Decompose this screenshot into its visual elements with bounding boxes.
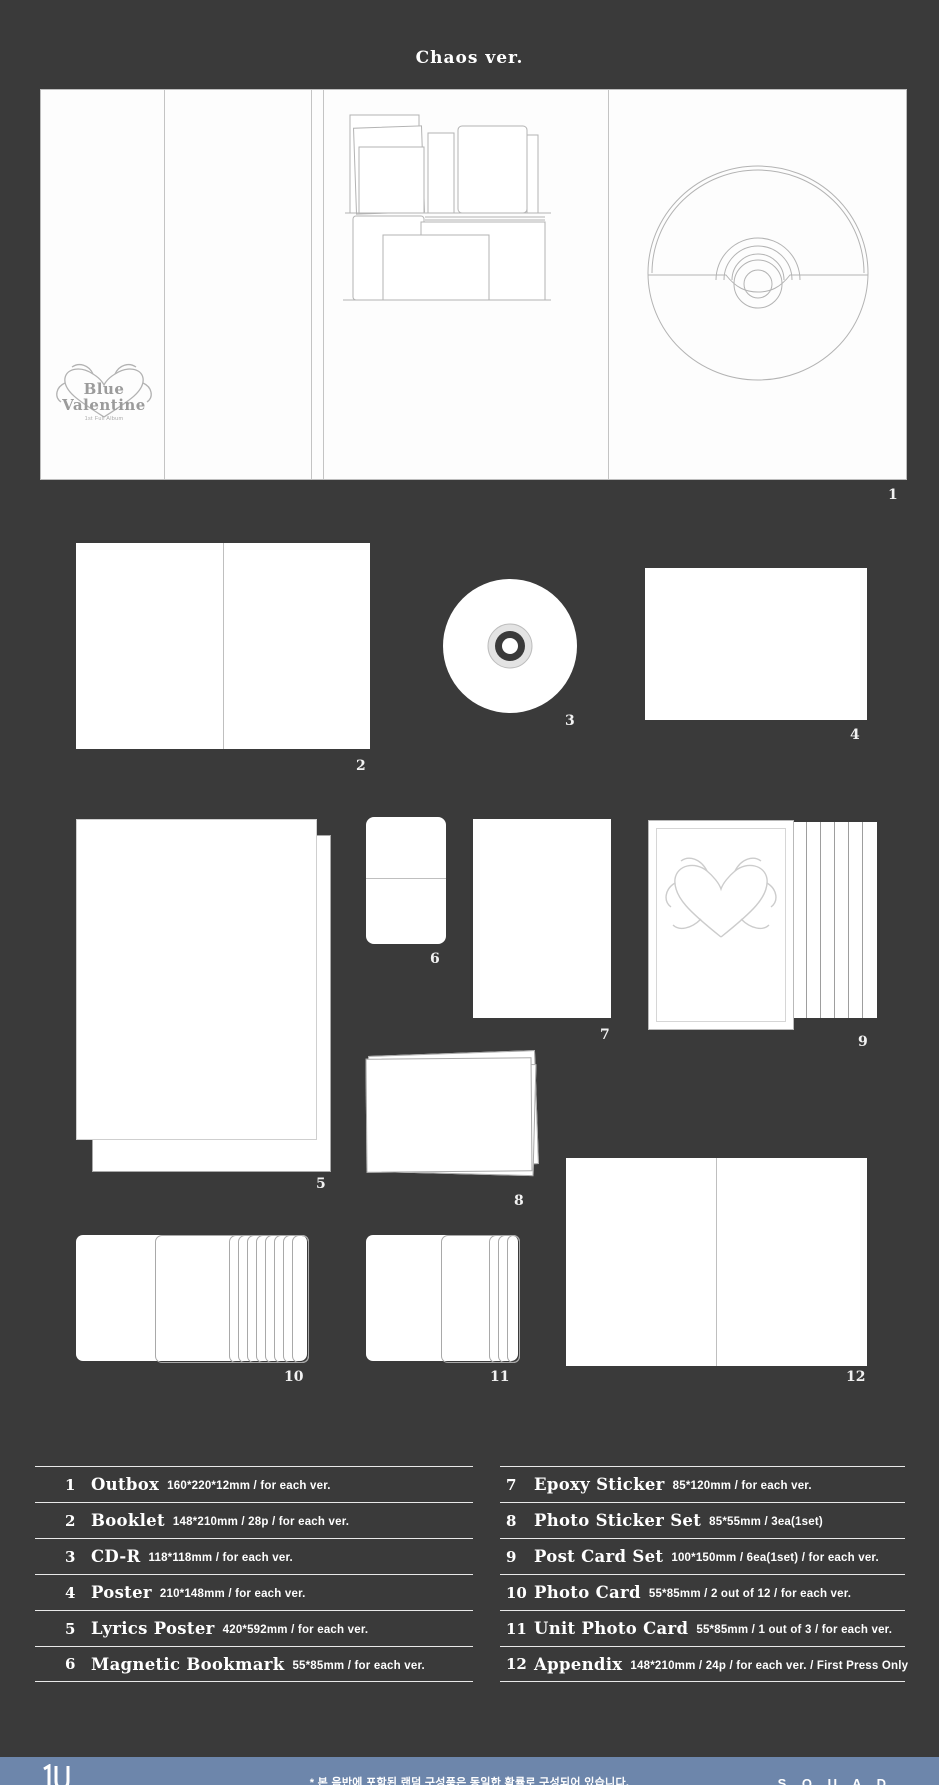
list-item-number: 1 (65, 1476, 91, 1494)
list-item-name: Appendix (534, 1655, 622, 1674)
photo-card-edge (292, 1235, 309, 1363)
list-item-number: 12 (506, 1655, 534, 1673)
list-item-name: Poster (91, 1583, 152, 1602)
list-item-number: 7 (506, 1476, 534, 1494)
list-item-spec: 55*85mm / for each ver. (292, 1657, 424, 1672)
photo-sticker-figure (366, 1057, 533, 1172)
outbox-spread-figure: Blue Valentine 1st Full Album (40, 89, 907, 480)
list-item: 12Appendix148*210mm / 24p / for each ver… (500, 1646, 905, 1682)
list-item-spec: 148*210mm / 24p / for each ver. / First … (630, 1657, 908, 1672)
figure-number-poster: 4 (850, 727, 860, 743)
bookmark-fold-line (366, 878, 446, 879)
postcard-edge-line (820, 822, 821, 1018)
list-item: 5Lyrics Poster420*592mm / for each ver. (35, 1610, 473, 1646)
postcard-edge-line (834, 822, 835, 1018)
postcard-edge-line (862, 822, 863, 1018)
figure-number-photo-sticker: 8 (514, 1193, 524, 1209)
figure-number-lyrics-poster: 5 (316, 1176, 326, 1192)
list-item-spec: 160*220*12mm / for each ver. (167, 1477, 331, 1492)
list-item-name: Magnetic Bookmark (91, 1655, 284, 1674)
logo-text-line1: Blue (49, 381, 159, 397)
figure-number-bookmark: 6 (430, 951, 440, 967)
outbox-flap-line (311, 90, 312, 479)
postcard-stack (792, 822, 877, 1018)
list-item-spec: 210*148mm / for each ver. (160, 1585, 306, 1600)
list-item: 4Poster210*148mm / for each ver. (35, 1574, 473, 1610)
outbox-disc-holder-lineart (641, 160, 876, 390)
logo-text-line2: Valentine (49, 397, 159, 413)
appendix-spine-line (716, 1158, 717, 1366)
figure-number-postcard-set: 9 (858, 1034, 868, 1050)
figure-number-outbox: 1 (888, 487, 898, 503)
list-item: 6Magnetic Bookmark55*85mm / for each ver… (35, 1646, 473, 1682)
list-item: 2Booklet148*210mm / 28p / for each ver. (35, 1502, 473, 1538)
postcard-edge-line (806, 822, 807, 1018)
figure-number-unit-photo-card: 11 (490, 1369, 509, 1385)
unit-photo-card-edge (507, 1235, 520, 1363)
list-item-name: Post Card Set (534, 1547, 663, 1566)
list-item: 10Photo Card55*85mm / 2 out of 12 / for … (500, 1574, 905, 1610)
outbox-panel-divider (164, 90, 165, 479)
list-item-number: 2 (65, 1512, 91, 1530)
list-item-spec: 148*210mm / 28p / for each ver. (173, 1513, 349, 1528)
contents-list-left: 1Outbox160*220*12mm / for each ver. 2Boo… (35, 1466, 473, 1682)
list-item-name: Epoxy Sticker (534, 1475, 665, 1494)
list-item-number: 6 (65, 1655, 91, 1673)
list-item-name: CD-R (91, 1547, 141, 1566)
list-item-spec: 55*85mm / 2 out of 12 / for each ver. (649, 1585, 851, 1600)
list-item: 9Post Card Set100*150mm / 6ea(1set) / fo… (500, 1538, 905, 1574)
figure-number-epoxy-sticker: 7 (600, 1027, 610, 1043)
booklet-figure (76, 543, 370, 749)
list-item-name: Photo Sticker Set (534, 1511, 701, 1530)
appendix-figure (566, 1158, 867, 1366)
outbox-contents-lineart (341, 101, 611, 316)
list-item: 1Outbox160*220*12mm / for each ver. (35, 1466, 473, 1502)
album-contents-page: Chaos ver. Blue Valentine 1st Full Album (0, 0, 939, 1785)
magnetic-bookmark-figure (366, 817, 446, 944)
footer-bar: * 본 음반에 포함된 랜덤 구성품은 동일한 확률로 구성되어 있습니다. S… (0, 1757, 939, 1785)
blue-valentine-logo: Blue Valentine 1st Full Album (49, 367, 159, 451)
list-item-number: 10 (506, 1584, 534, 1602)
heart-flourish-artwork-icon (661, 849, 781, 949)
list-item-spec: 85*55mm / 3ea(1set) (709, 1513, 823, 1528)
poster-figure (645, 568, 867, 720)
list-item-spec: 100*150mm / 6ea(1set) / for each ver. (671, 1549, 879, 1564)
list-item-name: Photo Card (534, 1583, 641, 1602)
figure-number-cd: 3 (565, 713, 575, 729)
list-item-number: 4 (65, 1584, 91, 1602)
list-item: 7Epoxy Sticker85*120mm / for each ver. (500, 1466, 905, 1502)
list-item-name: Lyrics Poster (91, 1619, 215, 1638)
list-item-name: Outbox (91, 1475, 159, 1494)
postcard-front-figure (648, 820, 794, 1030)
list-item-number: 3 (65, 1548, 91, 1566)
list-item: 3CD-R118*118mm / for each ver. (35, 1538, 473, 1574)
list-item-number: 11 (506, 1620, 534, 1638)
list-item-spec: 85*120mm / for each ver. (673, 1477, 812, 1492)
figure-number-booklet: 2 (356, 758, 366, 774)
list-item-spec: 55*85mm / 1 out of 3 / for each ver. (696, 1621, 892, 1636)
list-item-number: 5 (65, 1620, 91, 1638)
list-item-name: Booklet (91, 1511, 165, 1530)
cd-figure (441, 577, 579, 715)
postcard-edge-line (848, 822, 849, 1018)
booklet-spine-line (223, 543, 224, 749)
list-item-spec: 420*592mm / for each ver. (223, 1621, 369, 1636)
figure-number-photo-card: 10 (284, 1369, 303, 1385)
list-item-spec: 118*118mm / for each ver. (149, 1549, 293, 1564)
list-item-number: 8 (506, 1512, 534, 1530)
contents-list-right: 7Epoxy Sticker85*120mm / for each ver. 8… (500, 1466, 905, 1682)
figure-number-appendix: 12 (846, 1369, 865, 1385)
epoxy-sticker-figure (473, 819, 611, 1018)
list-item-name: Unit Photo Card (534, 1619, 688, 1638)
outbox-flap-line (323, 90, 324, 479)
footer-brand-name: S Q U A D (778, 1776, 892, 1785)
logo-subtext: 1st Full Album (49, 416, 159, 422)
list-item: 11Unit Photo Card55*85mm / 1 out of 3 / … (500, 1610, 905, 1646)
lyrics-poster-figure (76, 819, 317, 1140)
version-title: Chaos ver. (0, 48, 939, 68)
list-item: 8Photo Sticker Set85*55mm / 3ea(1set) (500, 1502, 905, 1538)
list-item-number: 9 (506, 1548, 534, 1566)
